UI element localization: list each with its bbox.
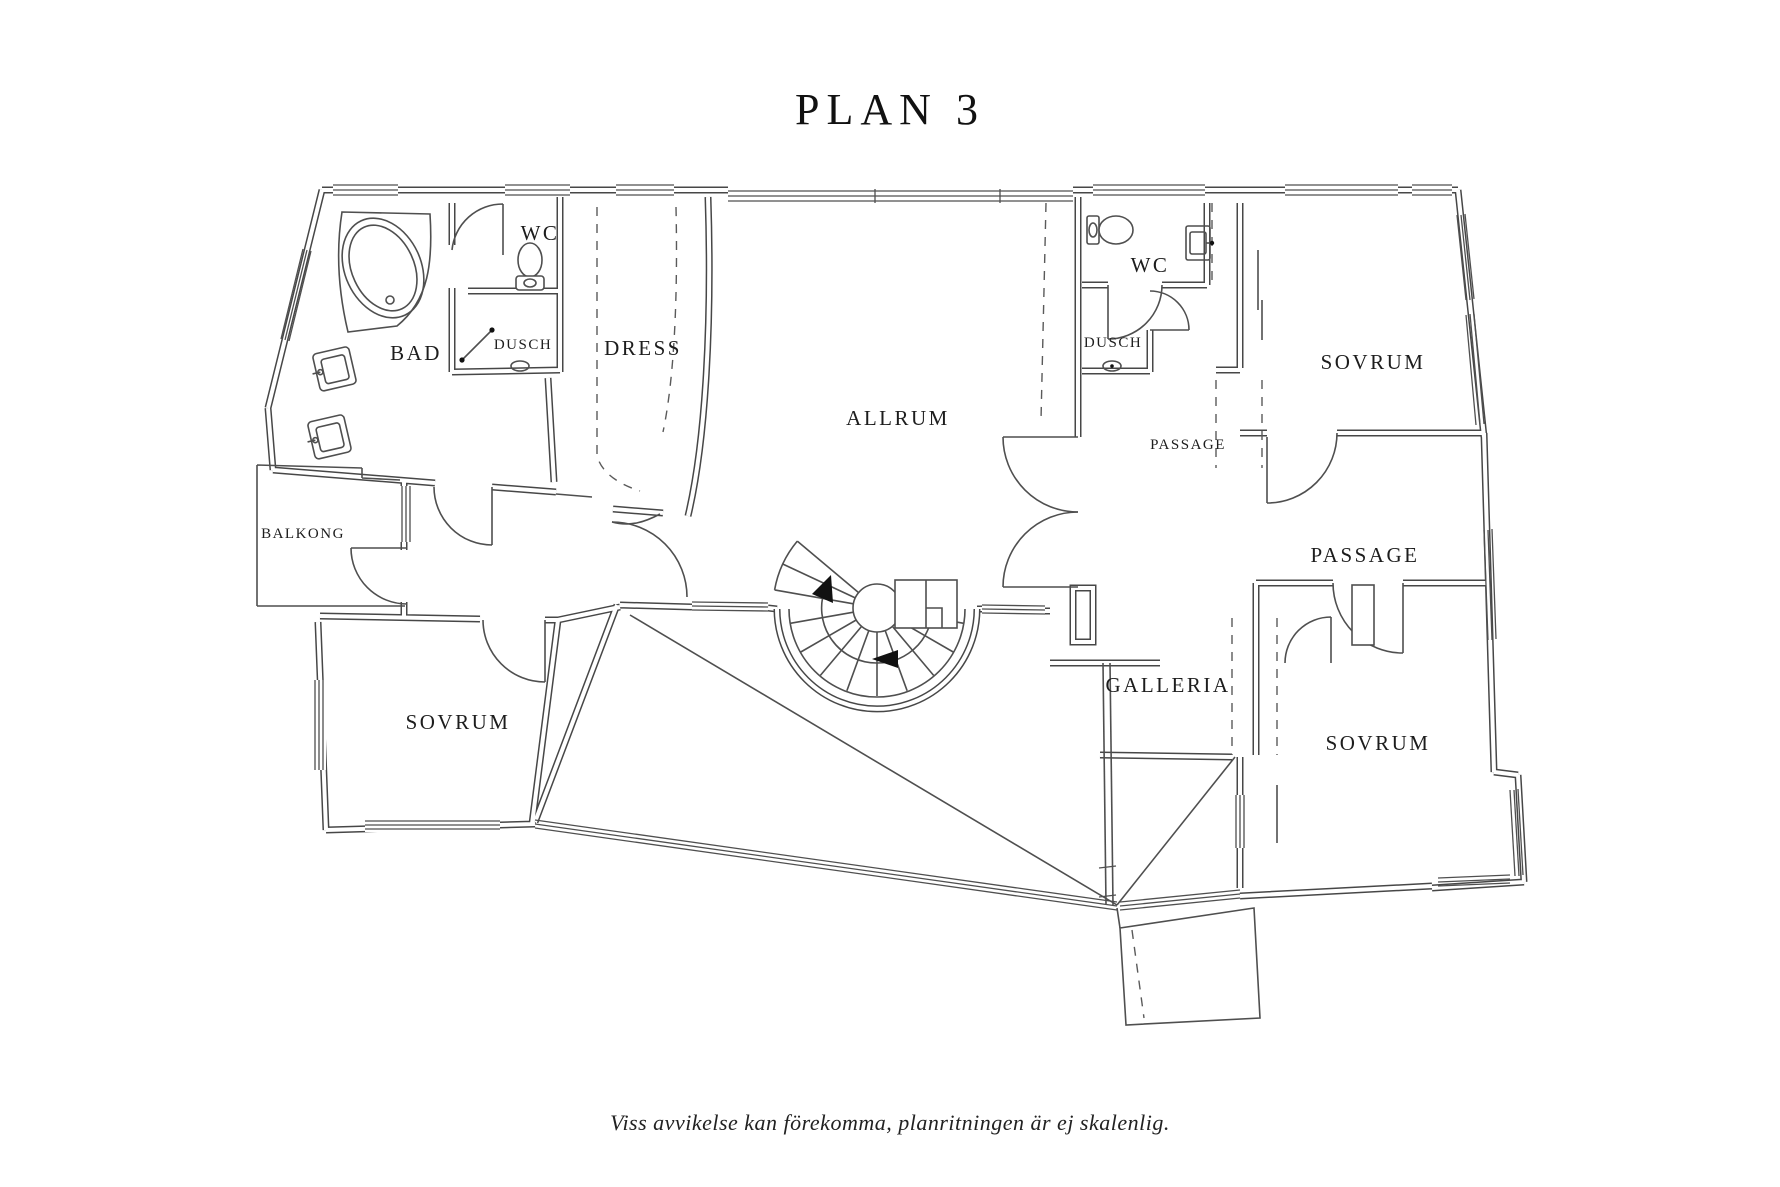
stair-center-post [853,584,901,632]
window-top-sovrum-2 [1412,184,1452,196]
door-bad-hall [434,487,492,545]
window-top-3 [616,184,674,196]
window-sovrum-bl-south [365,818,500,832]
disclaimer-text: Viss avvikelse kan förekomma, planritnin… [610,1110,1170,1135]
terrace-railing-band [535,820,1117,910]
door-sovrum-tr [1267,433,1337,503]
page-title: PLAN 3 [795,85,985,134]
toilet-left [516,243,544,290]
room-label-passage: PASSAGE [1311,543,1420,567]
window-top-sovrum-1 [1285,184,1398,196]
room-label-wc-right: WC [1131,253,1170,277]
window-band-bottom-right [1120,890,1240,910]
sink-double [303,346,356,460]
room-label-sovrum-bl: SOVRUM [406,710,511,734]
lower-roof-protrusion [1120,908,1260,1025]
room-label-passage-small: PASSAGE [1150,437,1226,453]
room-label-allrum: ALLRUM [846,406,950,430]
window-galleria-band [1236,795,1244,848]
balcony-door-arc [351,548,407,604]
toilet-right [1087,216,1133,244]
room-label-dress: DRESS [604,336,682,360]
room-label-bad: BAD [390,341,442,365]
sink-right [1186,226,1214,260]
door-sovrum-bl [483,620,545,682]
window-balcony-door [400,486,412,542]
room-label-sovrum-br: SOVRUM [1326,731,1431,755]
room-label-wc-left: WC [521,221,560,245]
window-top-1 [333,184,398,196]
door-allrum-east-leaf2 [1003,512,1078,587]
room-label-sovrum-tr: SOVRUM [1321,350,1426,374]
window-sovrum-bl-west [313,680,326,770]
room-label-balkong: BALKONG [261,526,345,542]
bathtub [327,205,440,332]
window-top-wc [1093,184,1205,196]
window-stair-left [692,600,768,613]
floor-plan-drawing: BAD WC DUSCH DRESS ALLRUM WC DUSCH PASSA… [0,0,1780,1187]
window-allrum-band [728,189,1073,203]
door-wc-right [1108,285,1162,339]
window-top-2 [505,184,570,196]
room-label-galleria: GALLERIA [1106,673,1231,697]
room-label-dusch-right: DUSCH [1084,335,1142,351]
closet-door [1352,585,1374,645]
door-galleria [1285,617,1331,663]
window-stair-right [982,603,1045,616]
door-wc-left [452,204,503,255]
door-allrum-east-leaf1 [1003,437,1078,512]
floor-plan-page: BAD WC DUSCH DRESS ALLRUM WC DUSCH PASSA… [0,0,1780,1187]
stair-direction-arrow-down [872,650,898,668]
door-allrum-sw [612,514,687,597]
room-label-dusch-left: DUSCH [494,337,552,353]
hall-jamb-line [556,494,592,497]
